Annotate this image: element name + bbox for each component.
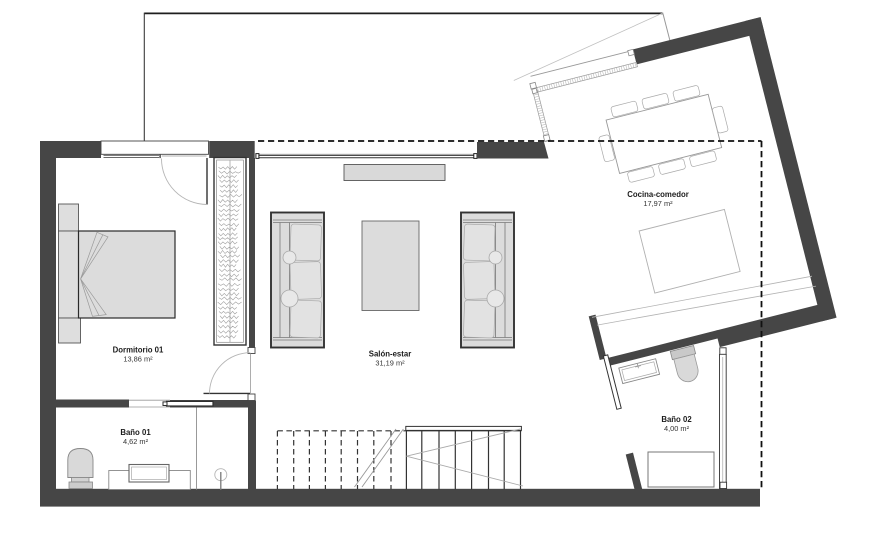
svg-text:Baño 02: Baño 02 — [661, 415, 692, 424]
svg-text:31,19 m²: 31,19 m² — [375, 359, 405, 368]
svg-text:13,86 m²: 13,86 m² — [123, 355, 153, 364]
svg-text:Baño 01: Baño 01 — [120, 428, 151, 437]
svg-text:4,62 m²: 4,62 m² — [123, 437, 149, 446]
svg-text:Salón-estar: Salón-estar — [369, 350, 411, 359]
svg-text:17,97 m²: 17,97 m² — [643, 199, 673, 208]
svg-text:Cocina-comedor: Cocina-comedor — [627, 190, 689, 199]
svg-text:4,00 m²: 4,00 m² — [664, 424, 690, 433]
svg-text:Dormitorio 01: Dormitorio 01 — [113, 346, 164, 355]
